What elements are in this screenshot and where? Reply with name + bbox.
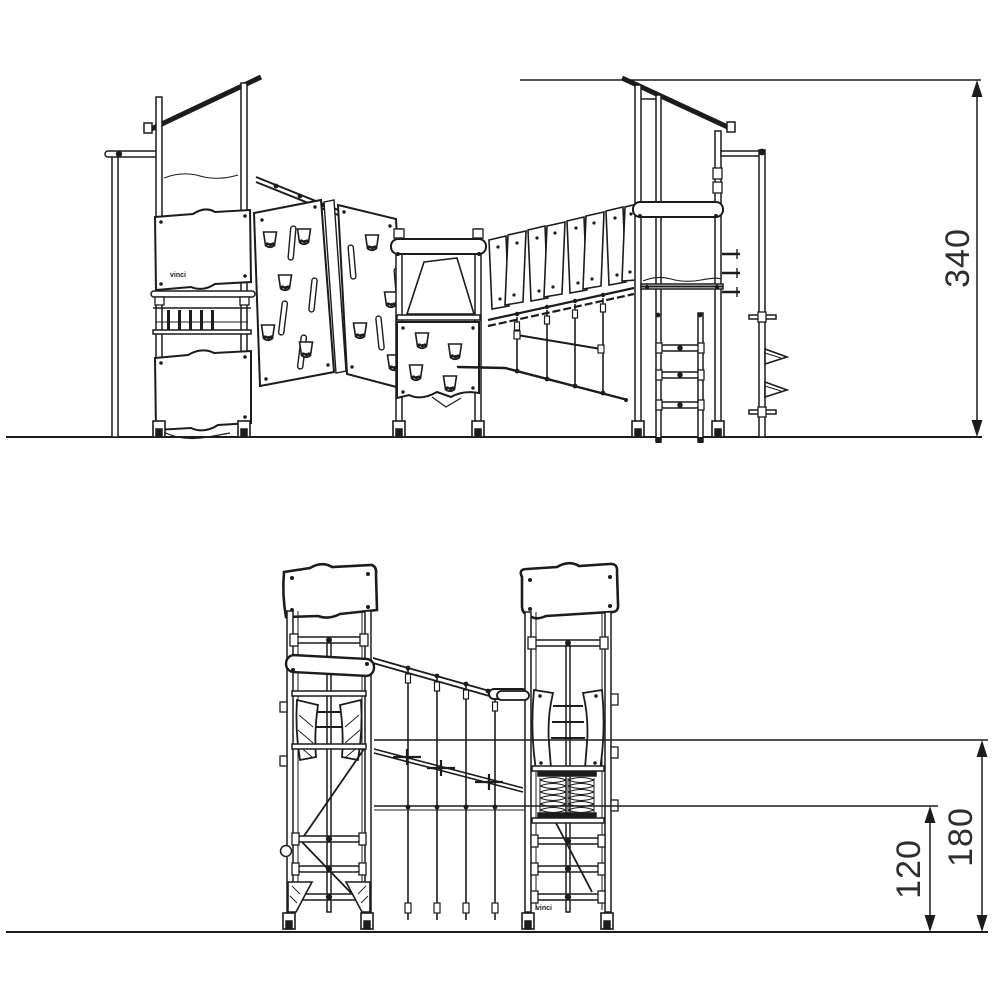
dimension-arrow-up-icon — [925, 806, 936, 823]
technical-drawing-canvas: vinci — [0, 0, 1000, 1000]
dimension-arrow-down-icon — [972, 420, 983, 437]
slide-opening — [407, 258, 474, 314]
hanging-bridge — [458, 204, 637, 402]
dimension-label-180: 180 — [942, 807, 980, 867]
dimension-label-120: 120 — [890, 839, 928, 899]
left-tower: vinci — [144, 77, 261, 438]
brand-logo-end: vinci — [536, 905, 552, 912]
dimension-arrow-up-icon — [972, 80, 983, 97]
middle-tower-top-beam — [391, 239, 486, 254]
spring-coil — [538, 772, 568, 817]
end-elevation-view: vinci 180 120 — [6, 563, 988, 932]
dimension-arrow-down-icon — [925, 915, 936, 932]
fireman-pole-left — [105, 151, 158, 437]
end-tower-right: vinci — [497, 563, 618, 929]
climbing-wall — [254, 177, 404, 389]
end-tower-left-roof — [283, 564, 377, 617]
dimension-120: 120 — [374, 806, 938, 932]
side-elevation-view: vinci — [6, 77, 983, 443]
right-tower-top-beam — [633, 202, 723, 217]
technical-drawing-page: vinci — [0, 0, 1000, 1000]
end-tower-left — [280, 564, 377, 929]
side-step-bars — [722, 249, 740, 297]
dimension-arrow-up-icon — [977, 740, 988, 757]
monkey-rail-teeth — [167, 310, 214, 330]
step-cross-marks — [393, 749, 503, 790]
dimension-arrow-down-icon — [977, 915, 988, 932]
right-tower — [622, 78, 787, 443]
brand-logo-side: vinci — [170, 272, 186, 279]
end-tower-right-roof — [521, 563, 618, 618]
climbing-pole — [749, 149, 787, 437]
middle-tower-panel — [397, 322, 479, 398]
left-tower-lower-panel — [155, 350, 251, 430]
dimension-label-340: 340 — [939, 228, 977, 288]
middle-tower — [391, 229, 486, 437]
end-tower-left-roller — [286, 655, 375, 677]
access-ladder — [656, 313, 704, 443]
